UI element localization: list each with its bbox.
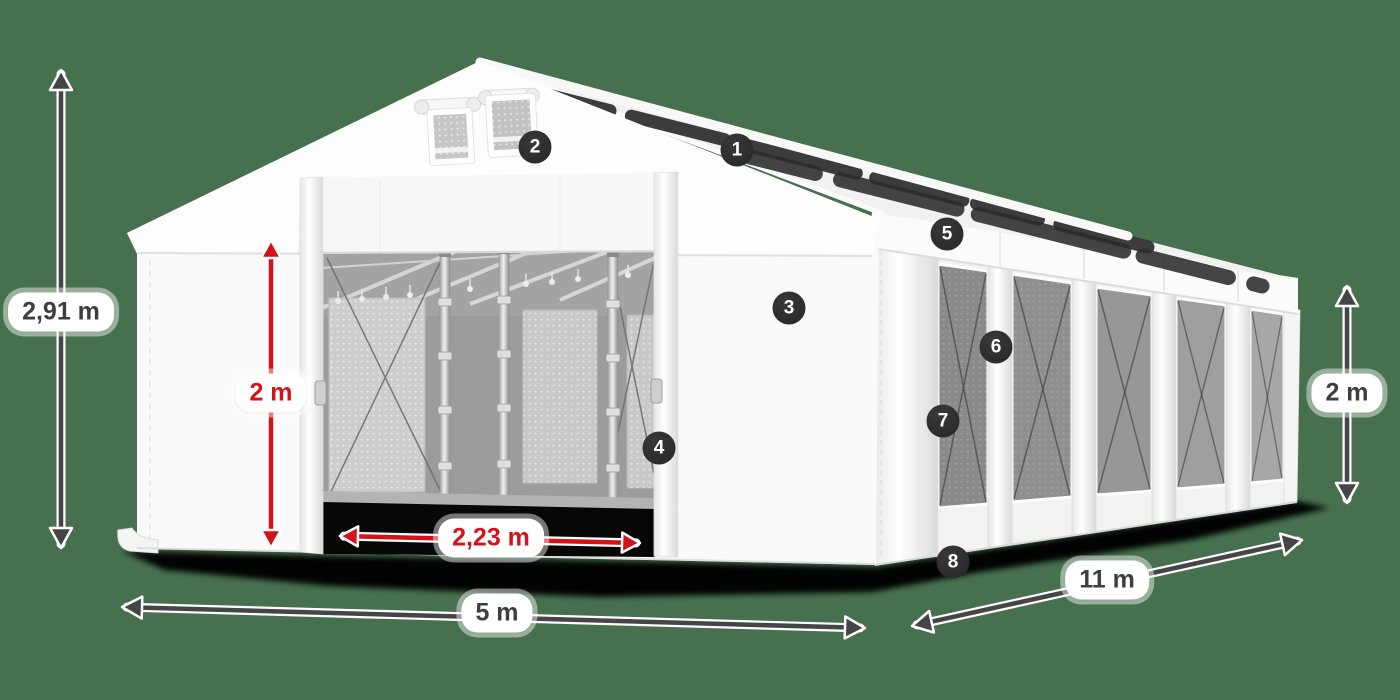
corner-post [872, 214, 938, 565]
door-width-label: 2,23 m [438, 519, 544, 558]
door-handle-left [315, 381, 326, 405]
callout-badge-3: 3 [773, 292, 806, 325]
front-width-label: 5 m [461, 594, 532, 633]
callout-badge-2: 2 [519, 131, 552, 164]
door-handle-right [651, 379, 662, 403]
side-length-label: 11 m [1065, 561, 1149, 600]
total-height-label: 2,91 m [8, 293, 114, 332]
callout-badge-1: 1 [721, 134, 754, 167]
callout-badge-5: 5 [931, 218, 964, 251]
callout-badge-6: 6 [980, 331, 1013, 364]
callout-badge-8: 8 [937, 546, 970, 579]
side-height-label: 2 m [1311, 374, 1382, 413]
callout-badge-7: 7 [927, 405, 960, 438]
tent-illustration [0, 0, 1400, 700]
door-opening-interior [322, 236, 655, 557]
callout-badge-4: 4 [643, 432, 676, 465]
tent-dimensions-diagram: 2,91 m 2 m 2,23 m 5 m 11 m 2 m 1 2 3 4 5… [0, 0, 1400, 700]
door-header [298, 172, 678, 254]
door-height-label: 2 m [235, 374, 306, 413]
